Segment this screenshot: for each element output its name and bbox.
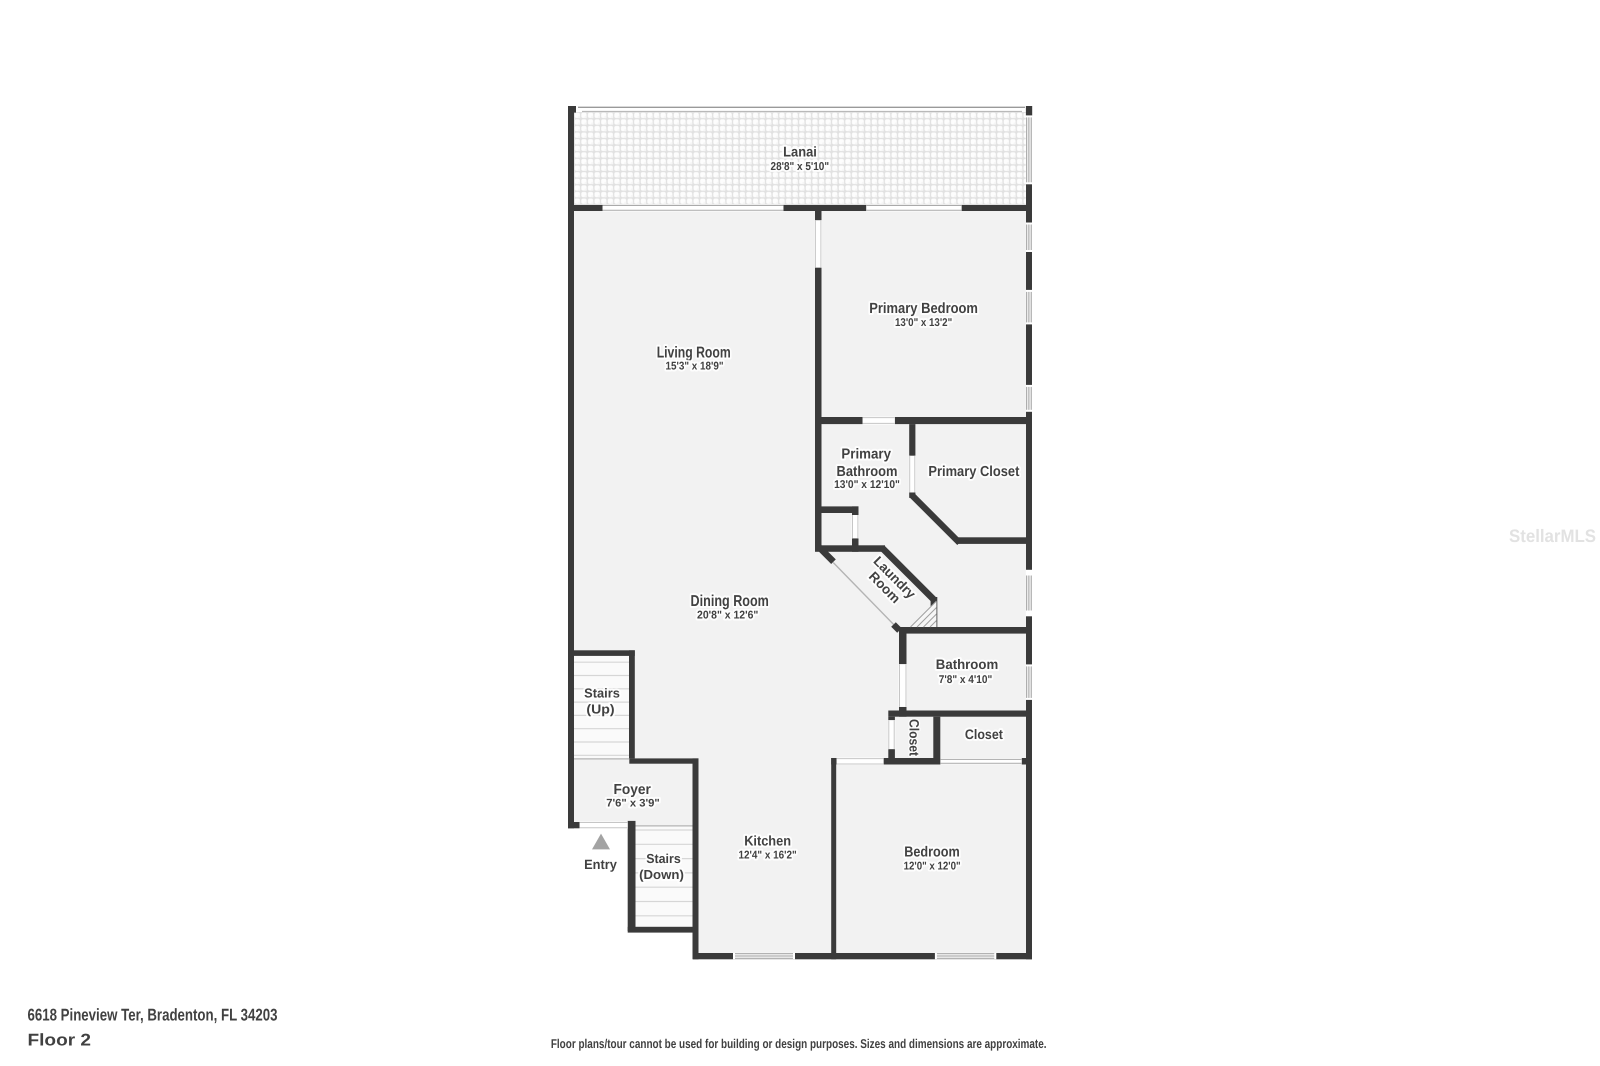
svg-text:12'4" x 16'2": 12'4" x 16'2": [739, 850, 797, 862]
svg-text:Primary: Primary: [841, 446, 891, 462]
svg-text:Stairs: Stairs: [584, 686, 620, 701]
svg-text:Closet: Closet: [907, 719, 922, 756]
svg-text:20'8" x 12'6": 20'8" x 12'6": [697, 610, 758, 622]
svg-text:Closet: Closet: [965, 727, 1003, 742]
svg-text:28'8" x 5'10": 28'8" x 5'10": [771, 161, 830, 173]
svg-text:Foyer: Foyer: [614, 782, 652, 798]
svg-text:Bedroom: Bedroom: [904, 845, 960, 861]
svg-text:Primary Bedroom: Primary Bedroom: [869, 301, 978, 317]
svg-text:Lanai: Lanai: [783, 144, 817, 160]
svg-text:Kitchen: Kitchen: [744, 832, 791, 848]
svg-text:6618 Pineview Ter, Bradenton,: 6618 Pineview Ter, Bradenton, FL 34203: [28, 1006, 278, 1025]
svg-text:(Up): (Up): [586, 702, 614, 717]
svg-text:7'8" x 4'10": 7'8" x 4'10": [939, 674, 993, 686]
svg-text:Primary Closet: Primary Closet: [928, 464, 1019, 480]
svg-text:Stairs: Stairs: [646, 851, 681, 866]
svg-text:7'6" x 3'9": 7'6" x 3'9": [606, 798, 660, 810]
svg-text:Entry: Entry: [584, 857, 617, 872]
svg-text:Dining Room: Dining Room: [691, 593, 769, 610]
svg-text:Living Room: Living Room: [657, 345, 731, 362]
svg-text:StellarMLS: StellarMLS: [1509, 526, 1596, 546]
svg-text:Floor 2: Floor 2: [28, 1031, 92, 1050]
svg-text:13'0" x 12'10": 13'0" x 12'10": [834, 479, 900, 491]
svg-text:12'0" x 12'0": 12'0" x 12'0": [904, 860, 961, 872]
svg-text:Bathroom: Bathroom: [837, 464, 898, 480]
svg-text:15'3" x 18'9": 15'3" x 18'9": [666, 361, 724, 373]
svg-text:Bathroom: Bathroom: [936, 657, 998, 672]
svg-text:Floor plans/tour cannot be use: Floor plans/tour cannot be used for buil…: [551, 1036, 1047, 1051]
svg-text:13'0" x 13'2": 13'0" x 13'2": [895, 317, 952, 329]
svg-text:(Down): (Down): [639, 867, 684, 882]
